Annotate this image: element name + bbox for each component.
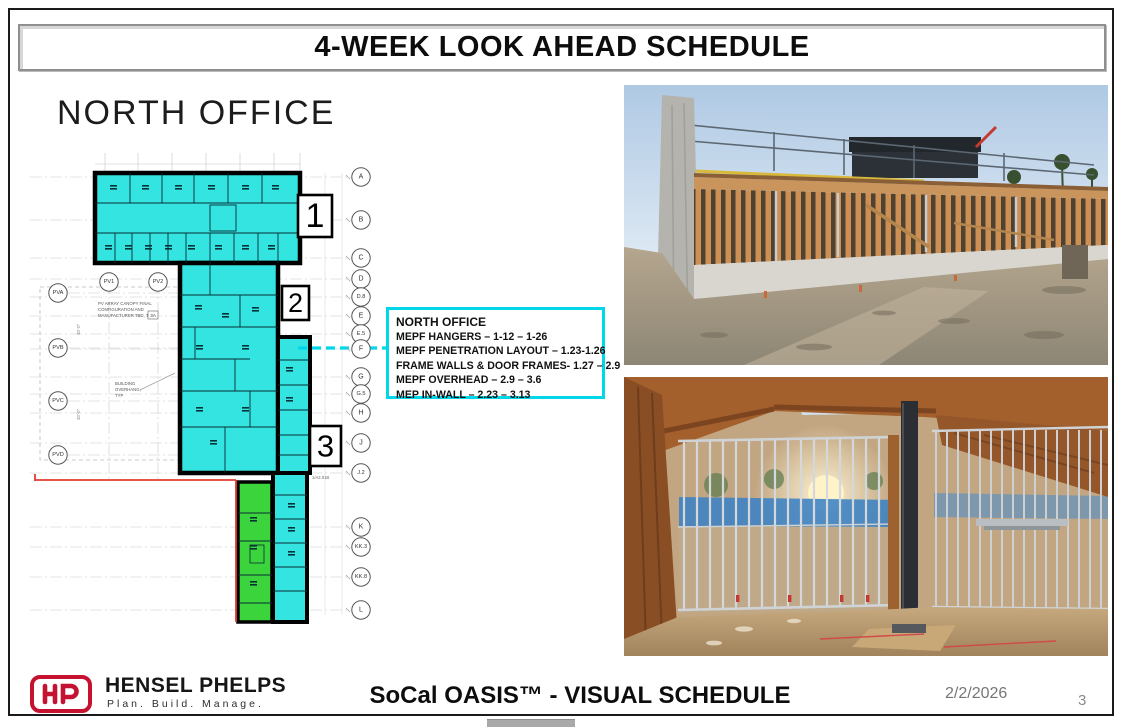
svg-text:TYP: TYP [115, 393, 123, 398]
callout-line: MEP IN-WALL – 2.23 – 3.13 [396, 388, 595, 403]
callout-lines: MEPF HANGERS – 1-12 – 1-26MEPF PENETRATI… [396, 330, 595, 403]
svg-text:K: K [359, 524, 364, 531]
svg-text:E.5: E.5 [357, 331, 365, 337]
svg-text:2: 2 [288, 288, 303, 318]
photo-construction-exterior [624, 85, 1108, 365]
callout-title: NORTH OFFICE [396, 315, 595, 330]
footer-date: 2/2/2026 [945, 685, 1007, 703]
scrollbar-thumb[interactable] [487, 719, 575, 727]
plan-heading: NORTH OFFICE [57, 94, 335, 133]
callout-line: MEPF OVERHEAD – 2.9 – 3.6 [396, 373, 595, 388]
hensel-phelps-logo-icon [30, 675, 92, 713]
svg-text:KK.3: KK.3 [355, 544, 367, 550]
slide-title: 4-WEEK LOOK AHEAD SCHEDULE [314, 31, 809, 64]
svg-text:E: E [359, 313, 364, 320]
footer-page-number: 3 [1078, 692, 1086, 709]
slide-title-box: 4-WEEK LOOK AHEAD SCHEDULE [18, 24, 1106, 71]
floor-plan-svg: 123ABCDD.8EE.5FGG.5HJJ.2KKK.3KK.8LPVAPVB… [10, 145, 400, 657]
svg-text:B: B [359, 217, 364, 224]
svg-text:D.8: D.8 [357, 294, 366, 300]
footer: HENSEL PHELPS Plan. Build. Manage. SoCal… [10, 670, 1114, 716]
svg-text:3: 3 [317, 429, 334, 464]
svg-text:30'-0": 30'-0" [76, 323, 81, 335]
svg-text:PVB: PVB [52, 345, 63, 351]
svg-text:G.5: G.5 [356, 391, 365, 397]
svg-text:J: J [359, 440, 363, 447]
floor-plan-drawing: 123ABCDD.8EE.5FGG.5HJJ.2KKK.3KK.8LPVAPVB… [10, 145, 400, 657]
footer-project-title: SoCal OASIS™ - VISUAL SCHEDULE [340, 682, 820, 710]
svg-text:BUILDING: BUILDING [115, 381, 136, 386]
svg-text:KK.8: KK.8 [355, 574, 367, 580]
svg-text:L: L [359, 607, 363, 614]
svg-text:D: D [358, 276, 363, 283]
svg-text:F: F [359, 346, 363, 353]
svg-text:1: 1 [306, 197, 325, 235]
schedule-callout: NORTH OFFICE MEPF HANGERS – 1-12 – 1-26M… [386, 307, 605, 399]
svg-text:J.2: J.2 [357, 470, 364, 476]
photo-construction-interior [624, 377, 1108, 656]
svg-text:C: C [358, 255, 363, 262]
svg-text:PVD: PVD [52, 452, 64, 458]
slide-page: 4-WEEK LOOK AHEAD SCHEDULE NORTH OFFICE … [0, 0, 1124, 727]
svg-text:PV ARRAY CANOPY FINAL: PV ARRAY CANOPY FINAL [98, 301, 152, 306]
footer-tagline: Plan. Build. Manage. [107, 698, 264, 710]
svg-text:PV1: PV1 [104, 279, 115, 285]
svg-text:PV2: PV2 [153, 279, 164, 285]
svg-text:PVC: PVC [52, 398, 64, 404]
svg-text:H: H [358, 410, 363, 417]
callout-line: FRAME WALLS & DOOR FRAMES- 1.27 – 2.9 [396, 359, 595, 374]
svg-text:MANUFACTURER TBD, TYP.: MANUFACTURER TBD, TYP. [98, 313, 155, 318]
svg-text:CONFIGURATION AND: CONFIGURATION AND [98, 307, 144, 312]
svg-text:PVA: PVA [53, 290, 64, 296]
svg-text:G: G [358, 374, 363, 381]
svg-text:30'-0": 30'-0" [76, 408, 81, 420]
callout-line: MEPF HANGERS – 1-12 – 1-26 [396, 330, 595, 345]
svg-text:3A: 3A [150, 313, 157, 319]
svg-text:A: A [359, 174, 364, 181]
svg-text:OVERHANG,: OVERHANG, [115, 387, 141, 392]
svg-text:1/A2.01B: 1/A2.01B [312, 475, 329, 480]
callout-line: MEPF PENETRATION LAYOUT – 1.23-1.26 [396, 344, 595, 359]
footer-company-name: HENSEL PHELPS [105, 674, 286, 698]
